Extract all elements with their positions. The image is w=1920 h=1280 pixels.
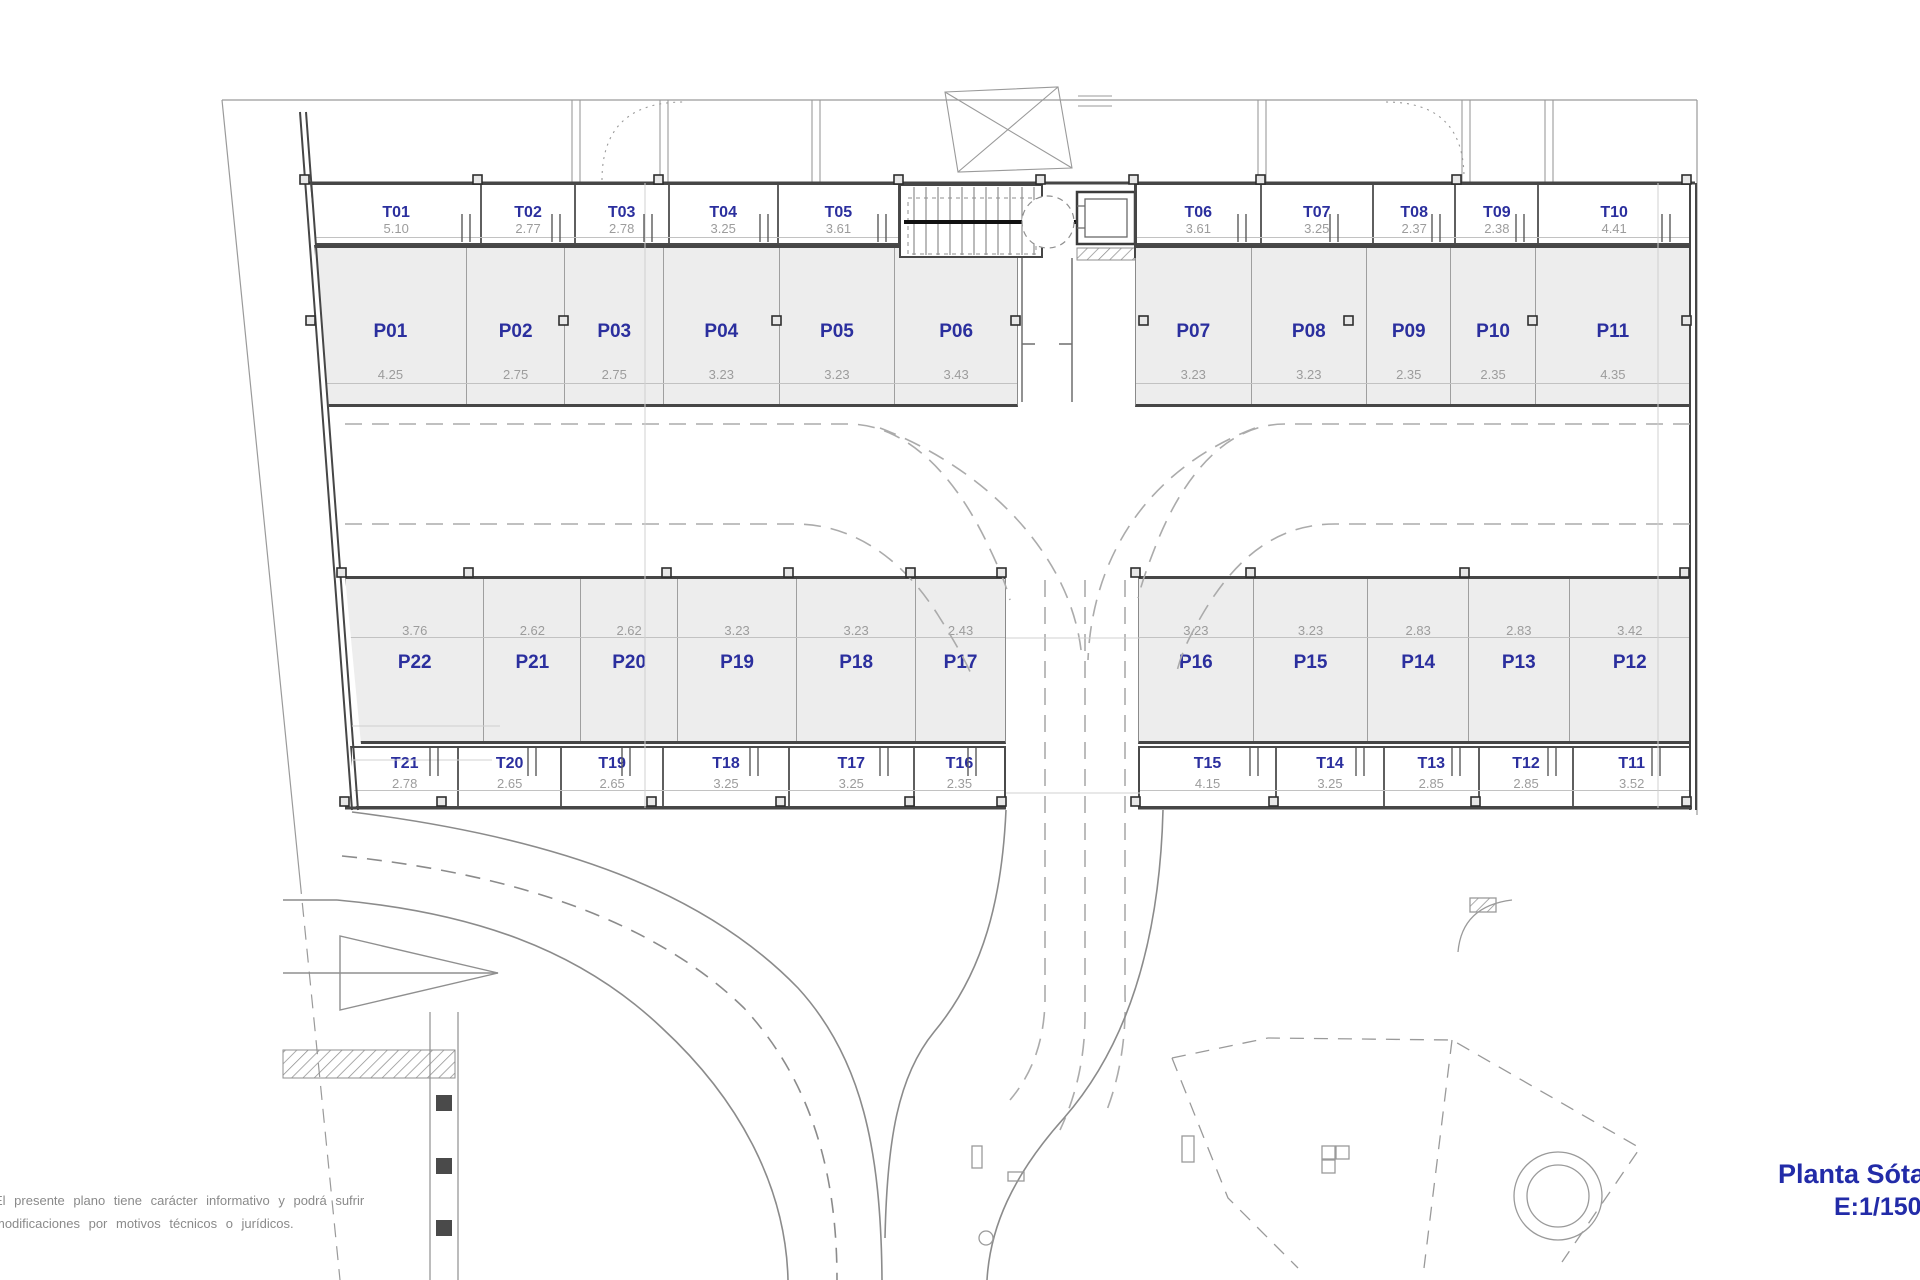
parking-space: P02 2.75	[467, 248, 566, 404]
storage-unit: T09 2.38	[1456, 185, 1539, 243]
storage-unit: T08 2.37	[1374, 185, 1456, 243]
parking-space: 2.62 P21	[484, 579, 581, 741]
unit-id: P21	[484, 652, 580, 674]
parking-space: 3.23 P19	[678, 579, 797, 741]
parking-space: P03 2.75	[565, 248, 664, 404]
unit-dimension: 4.35	[1536, 367, 1690, 382]
unit-dimension: 2.85	[1385, 776, 1478, 791]
landscape-boundary	[1172, 1038, 1640, 1268]
storage-unit: T11 3.52	[1574, 748, 1689, 806]
parking-space: P10 2.35	[1451, 248, 1535, 404]
retaining-wall-hatch	[283, 1050, 455, 1078]
unit-id: P08	[1252, 321, 1367, 343]
unit-id: P10	[1451, 321, 1534, 343]
unit-dimension: 2.43	[916, 623, 1005, 638]
unit-dimension: 3.23	[1136, 367, 1251, 382]
storage-unit: T14 3.25	[1277, 748, 1385, 806]
parking-space: 3.76 P22	[346, 579, 484, 741]
unit-id: T19	[562, 755, 662, 773]
unit-dimension: 3.25	[664, 776, 787, 791]
landscape-items	[972, 898, 1602, 1245]
unit-id: P16	[1139, 652, 1253, 674]
unit-id: P18	[797, 652, 915, 674]
storage-unit: T06 3.61	[1137, 185, 1262, 243]
unit-dimension: 3.52	[1574, 776, 1689, 791]
unit-dimension: 2.65	[459, 776, 559, 791]
unit-id: T04	[670, 204, 777, 222]
storage-row-bottom-left: T21 2.78 T20 2.65 T19 2.65 T18 3.25 T17 …	[350, 746, 1006, 808]
storage-unit: T18 3.25	[664, 748, 789, 806]
unit-id: T21	[352, 755, 457, 773]
storage-unit: T19 2.65	[562, 748, 664, 806]
disclaimer-line1: El presente plano tiene carácter informa…	[0, 1190, 414, 1213]
parking-row-bottom-left: 3.76 P22 2.62 P21 2.62 P20 3.23 P19 3.23…	[345, 576, 1006, 744]
unit-id: P02	[467, 321, 565, 343]
plan-title: Planta Sótano	[1778, 1158, 1920, 1192]
storage-row-top-left: T01 5.10 T02 2.77 T03 2.78 T04 3.25 T05 …	[310, 183, 900, 245]
unit-id: P13	[1469, 652, 1569, 674]
unit-id: P19	[678, 652, 796, 674]
unit-id: T11	[1574, 755, 1689, 773]
unit-dimension: 2.78	[576, 221, 668, 236]
unit-id: T08	[1374, 204, 1454, 222]
parking-space: 3.23 P15	[1254, 579, 1369, 741]
storage-unit: T21 2.78	[352, 748, 459, 806]
site-top-details	[572, 87, 1553, 183]
storage-unit: T01 5.10	[312, 185, 482, 243]
storage-unit: T04 3.25	[670, 185, 779, 243]
unit-id: T16	[915, 755, 1004, 773]
ramp-wall-piers	[436, 1095, 452, 1236]
unit-dimension: 5.10	[312, 221, 480, 236]
unit-dimension: 3.23	[1252, 367, 1367, 382]
unit-dimension: 3.43	[895, 367, 1017, 382]
unit-id: T13	[1385, 755, 1478, 773]
unit-id: T05	[779, 204, 898, 222]
unit-dimension: 2.83	[1469, 623, 1569, 638]
unit-id: T12	[1480, 755, 1573, 773]
parking-space: P11 4.35	[1536, 248, 1690, 404]
storage-unit: T02 2.77	[482, 185, 575, 243]
storage-unit: T03 2.78	[576, 185, 670, 243]
unit-id: T03	[576, 204, 668, 222]
unit-dimension: 3.23	[1139, 623, 1253, 638]
unit-dimension: 3.23	[678, 623, 796, 638]
unit-dimension: 2.35	[1451, 367, 1534, 382]
storage-unit: T15 4.15	[1140, 748, 1277, 806]
unit-id: T18	[664, 755, 787, 773]
parking-space: P04 3.23	[664, 248, 780, 404]
storage-unit: T20 2.65	[459, 748, 561, 806]
unit-id: T06	[1137, 204, 1260, 222]
storage-unit: T10 4.41	[1539, 185, 1689, 243]
parking-space: P09 2.35	[1367, 248, 1451, 404]
unit-dimension: 3.25	[790, 776, 913, 791]
storage-unit: T17 3.25	[790, 748, 915, 806]
unit-id: T02	[482, 204, 573, 222]
unit-id: P20	[581, 652, 677, 674]
parking-row-top-right: P07 3.23 P08 3.23 P09 2.35 P10 2.35 P11 …	[1135, 245, 1691, 407]
disclaimer-note: El presente plano tiene carácter informa…	[0, 1190, 414, 1236]
unit-id: P09	[1367, 321, 1450, 343]
unit-dimension: 4.41	[1539, 221, 1689, 236]
storage-unit: T07 3.25	[1262, 185, 1374, 243]
floor-plan-page: { "title_block": { "line1": "Planta Sóta…	[0, 0, 1920, 1280]
unit-id: P01	[315, 321, 466, 343]
road-curves	[283, 810, 1163, 1280]
storage-unit: T16 2.35	[915, 748, 1004, 806]
unit-dimension: 2.75	[565, 367, 663, 382]
unit-id: P05	[780, 321, 895, 343]
unit-dimension: 2.38	[1456, 221, 1537, 236]
parking-row-top-left: P01 4.25 P02 2.75 P03 2.75 P04 3.23 P05 …	[314, 245, 1018, 407]
parking-row-bottom-right: 3.23 P16 3.23 P15 2.83 P14 2.83 P13 3.42…	[1138, 576, 1691, 744]
storage-unit: T05 3.61	[779, 185, 898, 243]
unit-dimension: 3.23	[797, 623, 915, 638]
unit-dimension: 3.23	[780, 367, 895, 382]
plan-scale: E:1/150	[1778, 1192, 1920, 1223]
unit-id: T20	[459, 755, 559, 773]
unit-dimension: 2.83	[1368, 623, 1468, 638]
parking-space: 2.83 P13	[1469, 579, 1570, 741]
unit-dimension: 2.35	[915, 776, 1004, 791]
storage-row-bottom-right: T15 4.15 T14 3.25 T13 2.85 T12 2.85 T11 …	[1138, 746, 1691, 808]
parking-space: 2.43 P17	[916, 579, 1005, 741]
title-block: Planta Sótano E:1/150	[1778, 1158, 1920, 1223]
unit-dimension: 3.76	[346, 623, 483, 638]
unit-id: P14	[1368, 652, 1468, 674]
unit-dimension: 3.23	[664, 367, 779, 382]
parking-space: P05 3.23	[780, 248, 896, 404]
unit-dimension: 2.75	[467, 367, 565, 382]
unit-id: P04	[664, 321, 779, 343]
parking-space: 2.62 P20	[581, 579, 678, 741]
unit-dimension: 2.62	[581, 623, 677, 638]
unit-dimension: 3.61	[1137, 221, 1260, 236]
parking-space: P01 4.25	[315, 248, 467, 404]
parking-space: 3.23 P18	[797, 579, 916, 741]
unit-dimension: 3.23	[1254, 623, 1368, 638]
parking-space: P08 3.23	[1252, 248, 1368, 404]
parking-space: 3.23 P16	[1139, 579, 1254, 741]
unit-dimension: 2.77	[482, 221, 573, 236]
unit-id: T07	[1262, 204, 1372, 222]
elevator	[1077, 183, 1135, 260]
unit-id: P17	[916, 652, 1005, 674]
unit-dimension: 2.65	[562, 776, 662, 791]
unit-id: P12	[1570, 652, 1690, 674]
core-corridor	[1022, 258, 1072, 402]
unit-dimension: 2.37	[1374, 221, 1454, 236]
unit-id: T14	[1277, 755, 1383, 773]
parking-space: P06 3.43	[895, 248, 1017, 404]
parking-space: 2.83 P14	[1368, 579, 1469, 741]
unit-id: T10	[1539, 204, 1689, 222]
unit-dimension: 2.85	[1480, 776, 1573, 791]
storage-row-top-right: T06 3.61 T07 3.25 T08 2.37 T09 2.38 T10 …	[1135, 183, 1691, 245]
unit-dimension: 3.61	[779, 221, 898, 236]
unit-dimension: 3.25	[1262, 221, 1372, 236]
parking-space: P07 3.23	[1136, 248, 1252, 404]
unit-dimension: 3.25	[1277, 776, 1383, 791]
unit-id: T15	[1140, 755, 1275, 773]
unit-dimension: 3.42	[1570, 623, 1690, 638]
storage-unit: T12 2.85	[1480, 748, 1575, 806]
unit-dimension: 2.35	[1367, 367, 1450, 382]
unit-id: P11	[1536, 321, 1690, 343]
unit-dimension: 2.78	[352, 776, 457, 791]
unit-id: P22	[346, 652, 483, 674]
unit-dimension: 4.15	[1140, 776, 1275, 791]
unit-id: T09	[1456, 204, 1537, 222]
unit-dimension: 3.25	[670, 221, 777, 236]
unit-id: P07	[1136, 321, 1251, 343]
unit-id: P03	[565, 321, 663, 343]
unit-id: T01	[312, 204, 480, 222]
parking-space: 3.42 P12	[1570, 579, 1690, 741]
unit-id: P06	[895, 321, 1017, 343]
disclaimer-line2: modificaciones por motivos técnicos o ju…	[0, 1213, 414, 1236]
unit-dimension: 2.62	[484, 623, 580, 638]
unit-id: T17	[790, 755, 913, 773]
unit-id: P15	[1254, 652, 1368, 674]
unit-dimension: 4.25	[315, 367, 466, 382]
storage-unit: T13 2.85	[1385, 748, 1480, 806]
